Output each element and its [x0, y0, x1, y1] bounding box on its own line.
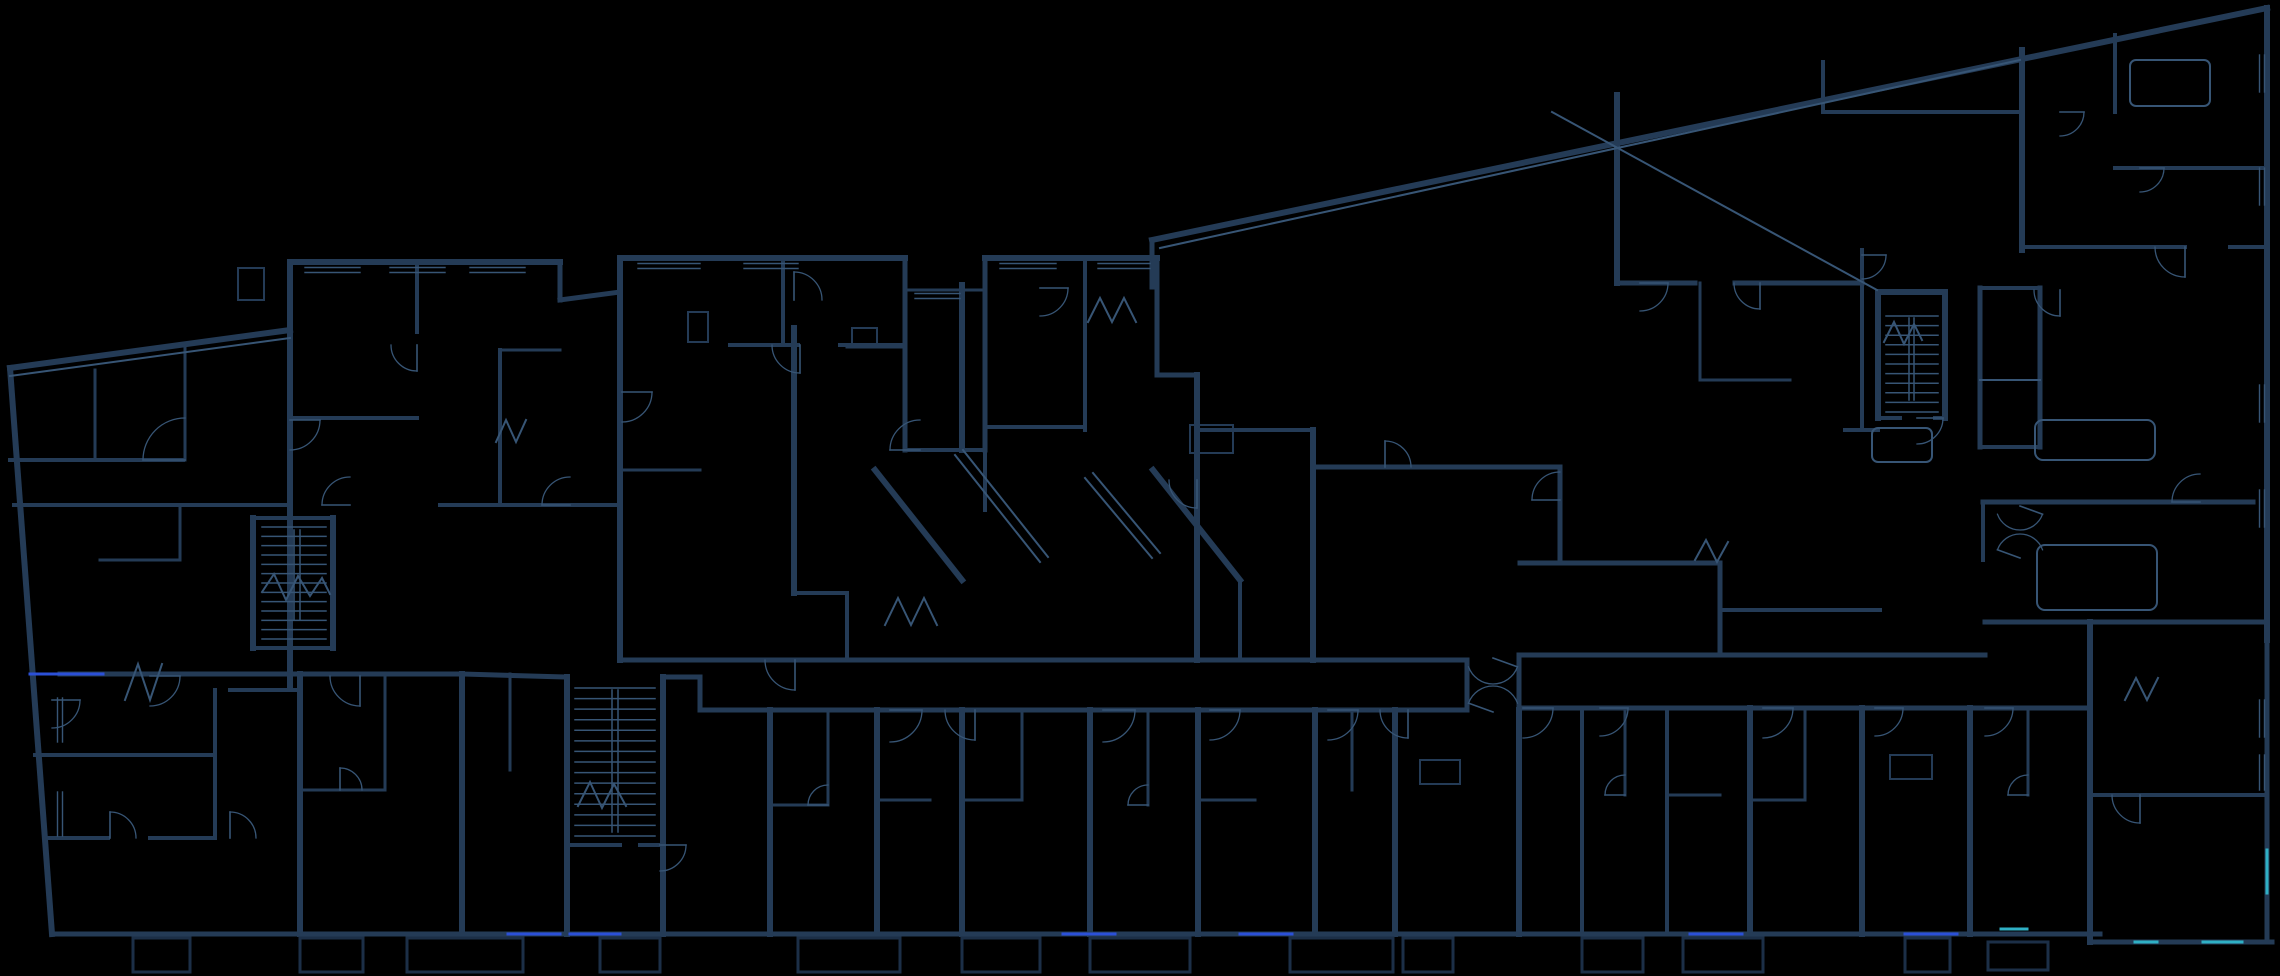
right-wing-walls: [10, 35, 2267, 795]
windows: [58, 55, 2265, 836]
doors: [52, 112, 2200, 871]
band-unit-walls: [300, 674, 2028, 805]
stairs: [262, 316, 1938, 836]
exterior-walls: [10, 8, 2272, 942]
floor-plan-page: [0, 0, 2280, 976]
corridor-and-band-walls: [60, 622, 2267, 942]
floor-plan-svg: [0, 0, 2280, 976]
break-symbols: [125, 298, 2158, 808]
balconies: [133, 938, 2048, 972]
center-wing-walls: [794, 285, 1313, 660]
